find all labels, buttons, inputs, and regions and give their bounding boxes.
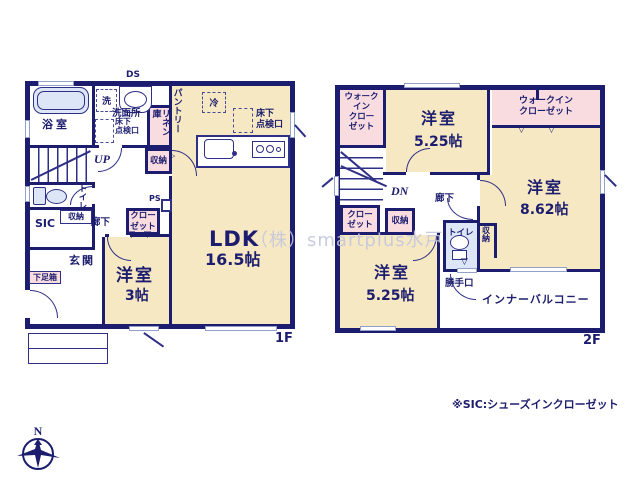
wall [487,90,490,175]
label-hallway-1f: 廊下 [91,217,110,228]
window [404,83,460,88]
backdoor-mark: ▽ [461,258,468,267]
wall [335,85,605,90]
label-floor1: 1F [275,331,293,346]
bathtub-inner [37,91,85,110]
label-backdoor: 勝手口 [445,278,474,289]
wall [476,269,510,272]
door-arc-entrance [30,290,58,318]
storage-mid: 収納 [145,148,172,174]
window [25,186,30,202]
compass-north-icon: N [10,422,68,478]
window [38,81,74,86]
label-west-room-size: 3帖 [125,288,149,305]
window [25,120,30,138]
window-swing-mark [604,174,616,186]
window-swing-mark [321,177,333,187]
label-ldk-size: 16.5帖 [205,251,260,270]
label-sic: SIC [35,218,55,231]
window-swing-mark [294,124,306,137]
floorplan-image: 収納 クロー ゼット 収納 下足箱 洗 冷 ▽ ▽ ▷ DS 浴室 洗面所 床下… [0,0,640,480]
toilet-bowl-1f [46,189,67,204]
label-entrance: 玄関 [69,255,95,268]
stove-burner [276,147,281,152]
label-room-south-name: 洋室 [374,264,410,283]
label-ps: PS [149,194,161,203]
folding-door-mark: ▽ [518,126,525,135]
label-room-south-size: 5.25帖 [366,288,415,305]
wall [600,85,605,333]
window [129,326,159,331]
window [334,176,339,196]
label-hallway-2f: 廊下 [435,193,454,204]
label-balcony: インナーバルコニー [482,294,590,307]
kitchen-sink [204,139,234,159]
label-wic-left: ウォーク イン クロー ゼット [340,92,383,132]
stove-burner [266,145,274,153]
storage-door-mark: ▷ [170,153,175,160]
label-toilet-1f: トイレ [77,184,87,210]
wall [567,269,600,272]
stove-burner [256,145,264,153]
label-toilet-2f: トイレ [448,228,474,238]
porch-step [28,333,108,349]
storage-hall: 収納 [60,210,92,224]
window [360,326,396,331]
label-wic-right: ウォークイン クローゼット [492,96,600,117]
label-bath: 浴室 [42,119,70,132]
folding-door-mark: ▽ [144,231,151,240]
wall [477,172,480,180]
label-ds: DS [126,70,140,81]
label-underfloor-ldk: 床下 点検口 [256,109,283,130]
label-storage-east: 収納 [481,226,490,252]
folding-door-mark: ▽ [128,231,135,240]
watermark: （株）smartplus水戸 [250,226,444,252]
porch-step [28,348,108,364]
window [510,267,567,272]
label-dn: DN [391,184,408,198]
wall [30,247,92,250]
label-room-north-name: 洋室 [421,110,457,129]
folding-door-mark: ▽ [548,126,555,135]
compass-n-label: N [34,424,43,438]
label-room-east-name: 洋室 [527,179,563,198]
wall [383,90,386,148]
refrigerator-space: 冷 [202,92,226,113]
wall [443,269,458,272]
label-up: UP [94,152,110,166]
vanity-bowl [124,91,147,108]
label-linen: リネン 庫 [150,109,169,145]
label-underfloor-wash: 床下 点検口 [115,117,139,136]
wall [102,237,105,324]
kitchen-faucet [232,151,237,156]
wall [494,223,497,258]
pipe-space-box [161,199,172,212]
underfloor-hatch-wash [95,119,114,143]
label-room-north-size: 5.25帖 [414,134,463,151]
underfloor-hatch-ldk [233,108,253,133]
wall [492,125,600,128]
footnote-sic: ※SIC:シューズインクローゼット [452,399,619,412]
backdoor-opening [457,268,477,273]
label-room-east-size: 8.62帖 [520,202,569,219]
window-swing-mark [144,332,165,347]
wall [477,206,480,272]
label-west-room-name: 洋室 [116,266,154,286]
wall [430,172,490,175]
wall [383,172,406,175]
window [205,326,277,331]
shoe-box: 下足箱 [29,271,61,284]
label-pantry: パントリー [171,88,182,138]
wall [443,220,480,223]
room-north [386,90,487,172]
toilet-tank-1f [33,187,46,205]
label-floor2: 2F [583,333,601,348]
